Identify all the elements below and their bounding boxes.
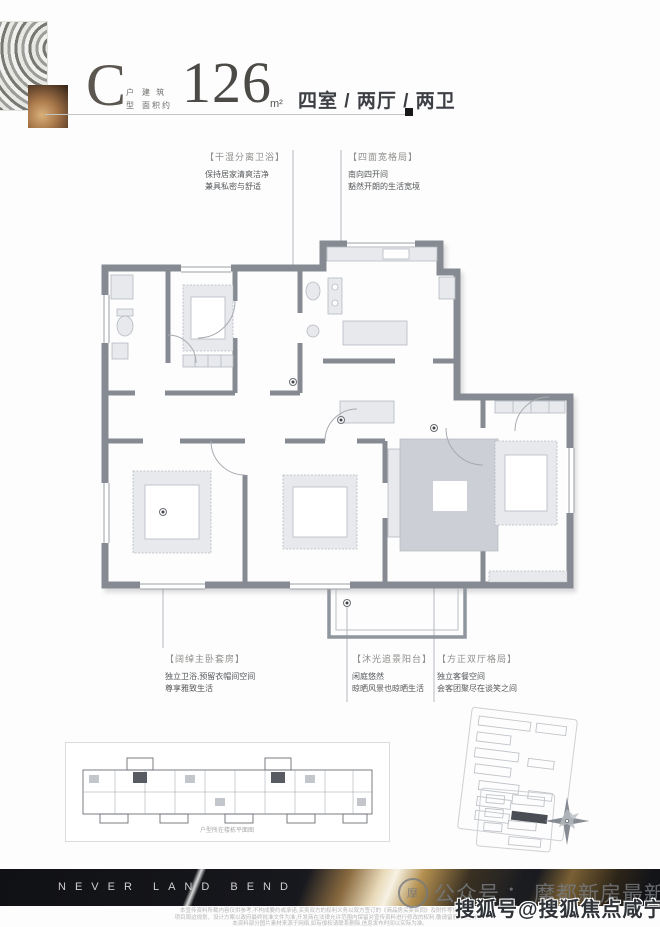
balcony [329, 588, 465, 637]
unit-type-label-bottom: 型 [126, 99, 134, 112]
stove [328, 278, 342, 314]
callout-master-suite: 【阔绰主卧套房】 独立卫浴,预留衣帽间空间 尊享雅致生活 [165, 652, 330, 695]
sofa [388, 449, 400, 537]
callout-dual-hall: 【方正双厅格局】 独立客餐空间 会客团聚尽在谈笑之间 [437, 652, 567, 695]
bay-window-seat [489, 571, 567, 582]
callout-bathroom: 【干湿分离卫浴】 保持居家清爽洁净 兼具私密与舒适 [205, 150, 315, 193]
unit-type-letter: C [86, 55, 126, 115]
sohu-watermark: 搜狐号@搜狐焦点咸宁站 [455, 893, 660, 922]
floorplan-drawing [85, 243, 575, 643]
unit-type-label-top: 户 [126, 86, 134, 99]
wechat-seal-icon: 摩 [398, 878, 428, 908]
key-plan-caption: 户型所在楼栋平面图 [200, 826, 254, 834]
callout-title: 【四面宽格局】 [348, 150, 468, 163]
toilet [117, 316, 133, 336]
room-layout-text: 四室 / 两厅 / 两卫 [298, 86, 456, 113]
callout-wide-layout: 【四面宽格局】 南向四开间 豁然开朗的生活宽境 [348, 150, 468, 193]
header-rule [45, 114, 405, 115]
kitchen-sink [383, 249, 409, 259]
header-rule-end-square [405, 108, 413, 116]
area-value: 126 [182, 52, 272, 114]
dining-table [340, 401, 394, 423]
toilet [306, 282, 320, 300]
callout-title: 【干湿分离卫浴】 [205, 150, 315, 163]
island [343, 321, 407, 345]
area-unit: m² [270, 98, 283, 110]
shower [111, 275, 133, 299]
toilet-tank [117, 309, 133, 316]
building-key-plan: 户型所在楼栋平面图 [65, 742, 390, 842]
floorplan-page: C 户 型 建 筑 面积约 126 m² 四室 / 两厅 / 两卫 【干湿分离卫… [0, 0, 660, 927]
kitchen-counter [327, 247, 437, 261]
unit-type-label: 户 型 [126, 86, 134, 112]
site-sketch [455, 705, 625, 855]
basin [307, 325, 319, 337]
brand-bronze-image [28, 85, 68, 128]
area-label: 建 筑 面积约 [142, 86, 172, 112]
banner-text: NEVER LAND BEND [58, 869, 297, 906]
vanity [112, 343, 128, 359]
fridge [439, 277, 455, 299]
